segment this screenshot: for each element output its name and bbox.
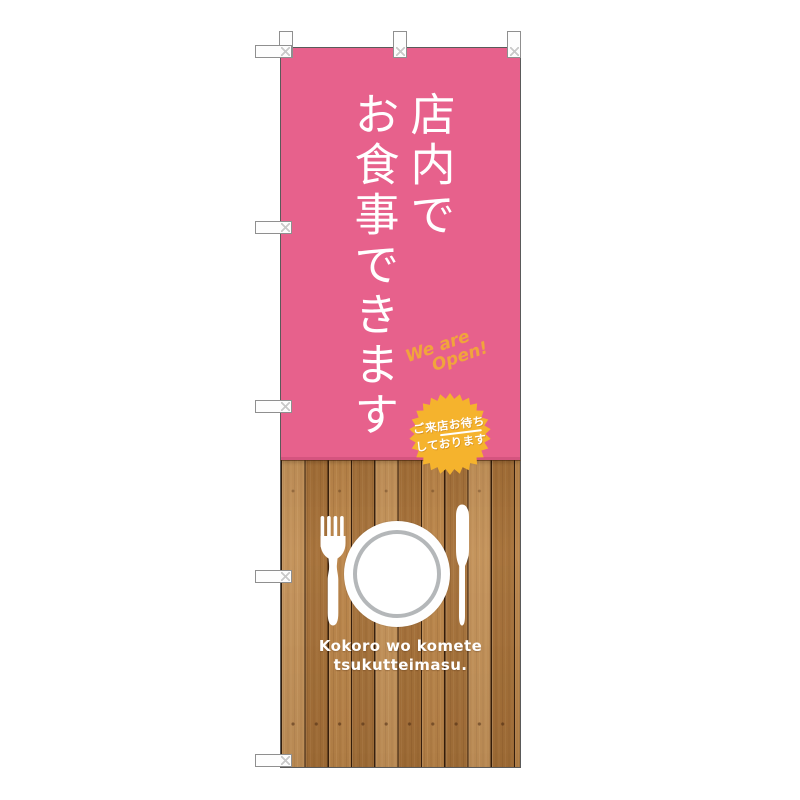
product-image-canvas: Kokoro wo komete tsukutteimasu. 店内で お食事で… [0,0,800,800]
fork-icon [320,516,346,626]
pole-tab-side-2 [255,221,292,234]
stitch-icon [281,402,290,411]
nobori-banner: Kokoro wo komete tsukutteimasu. 店内で お食事で… [280,47,521,768]
tagline: Kokoro wo komete tsukutteimasu. [281,637,520,675]
tagline-line1: Kokoro wo komete [281,637,520,656]
wood-panel: Kokoro wo komete tsukutteimasu. [280,460,521,768]
pole-tab-top-right [507,31,521,58]
stitch-icon [510,47,519,56]
open-badge: ご来店お待ち しております [404,388,496,480]
plate-icon [344,521,450,627]
stitch-icon [281,47,290,56]
pole-tab-side-5 [255,754,292,767]
pole-tab-side-1 [255,45,292,58]
pole-tab-side-3 [255,400,292,413]
title-column-left: お食事できます [345,91,401,441]
stitch-icon [396,47,405,56]
tagline-line2: tsukutteimasu. [281,656,520,675]
knife-icon [454,504,471,626]
stitch-icon [281,756,290,765]
pole-tab-side-4 [255,570,292,583]
stitch-icon [281,223,290,232]
plate-ring [353,530,441,618]
badge-text: ご来店お待ち しております [399,383,502,486]
stitch-icon [281,572,290,581]
pole-tab-top-center [393,31,407,58]
badge-line2: しております [415,432,487,454]
